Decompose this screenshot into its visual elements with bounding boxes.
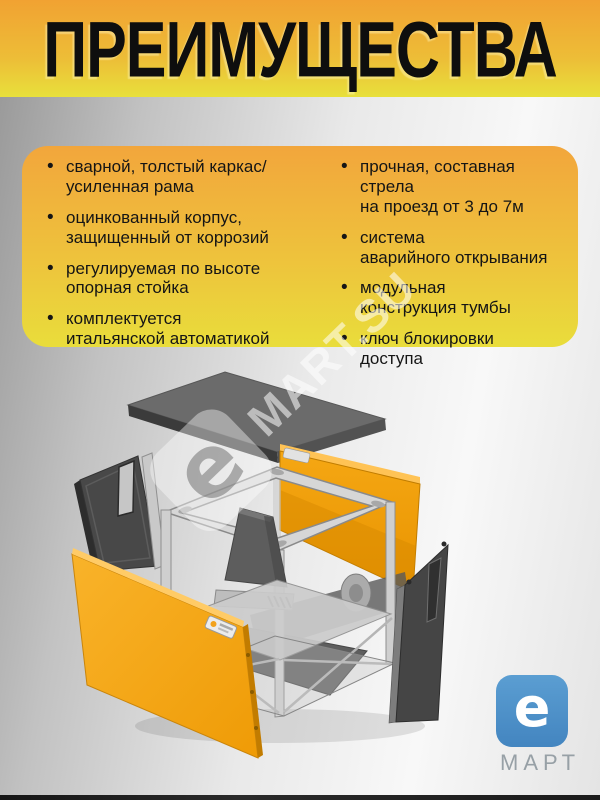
bottom-dark-strip (0, 795, 600, 800)
brand-logo-name: МАРТ (500, 750, 569, 776)
advantage-item: сварной, толстый каркас/ усиленная рама (44, 157, 338, 197)
header-band: ПРЕИМУЩЕСТВА (0, 0, 600, 97)
poster: ПРЕИМУЩЕСТВА сварной, толстый каркас/ ус… (0, 0, 600, 800)
lid-panel (128, 372, 386, 463)
exploded-diagram (40, 360, 470, 785)
brand-logo-e-letter: e (514, 681, 551, 735)
advantage-item: оцинкованный корпус, защищенный от корро… (44, 208, 338, 248)
advantages-list-left: сварной, толстый каркас/ усиленная рама … (44, 157, 338, 347)
page-title: ПРЕИМУЩЕСТВА (0, 0, 600, 112)
advantage-item: модульная конструкция тумбы (338, 278, 566, 318)
brand-logo: e МАРТ (495, 675, 569, 776)
advantage-item: прочная, составная стрела на проезд от 3… (338, 157, 566, 217)
advantages-list-right: прочная, составная стрела на проезд от 3… (338, 157, 566, 347)
advantages-card: сварной, толстый каркас/ усиленная рама … (22, 146, 578, 347)
advantage-item: система аварийного открывания (338, 228, 566, 268)
advantage-item: комплектуется итальянской автоматикой (44, 309, 338, 349)
advantage-item: регулируемая по высоте опорная стойка (44, 259, 338, 299)
brand-logo-badge: e (496, 675, 568, 747)
